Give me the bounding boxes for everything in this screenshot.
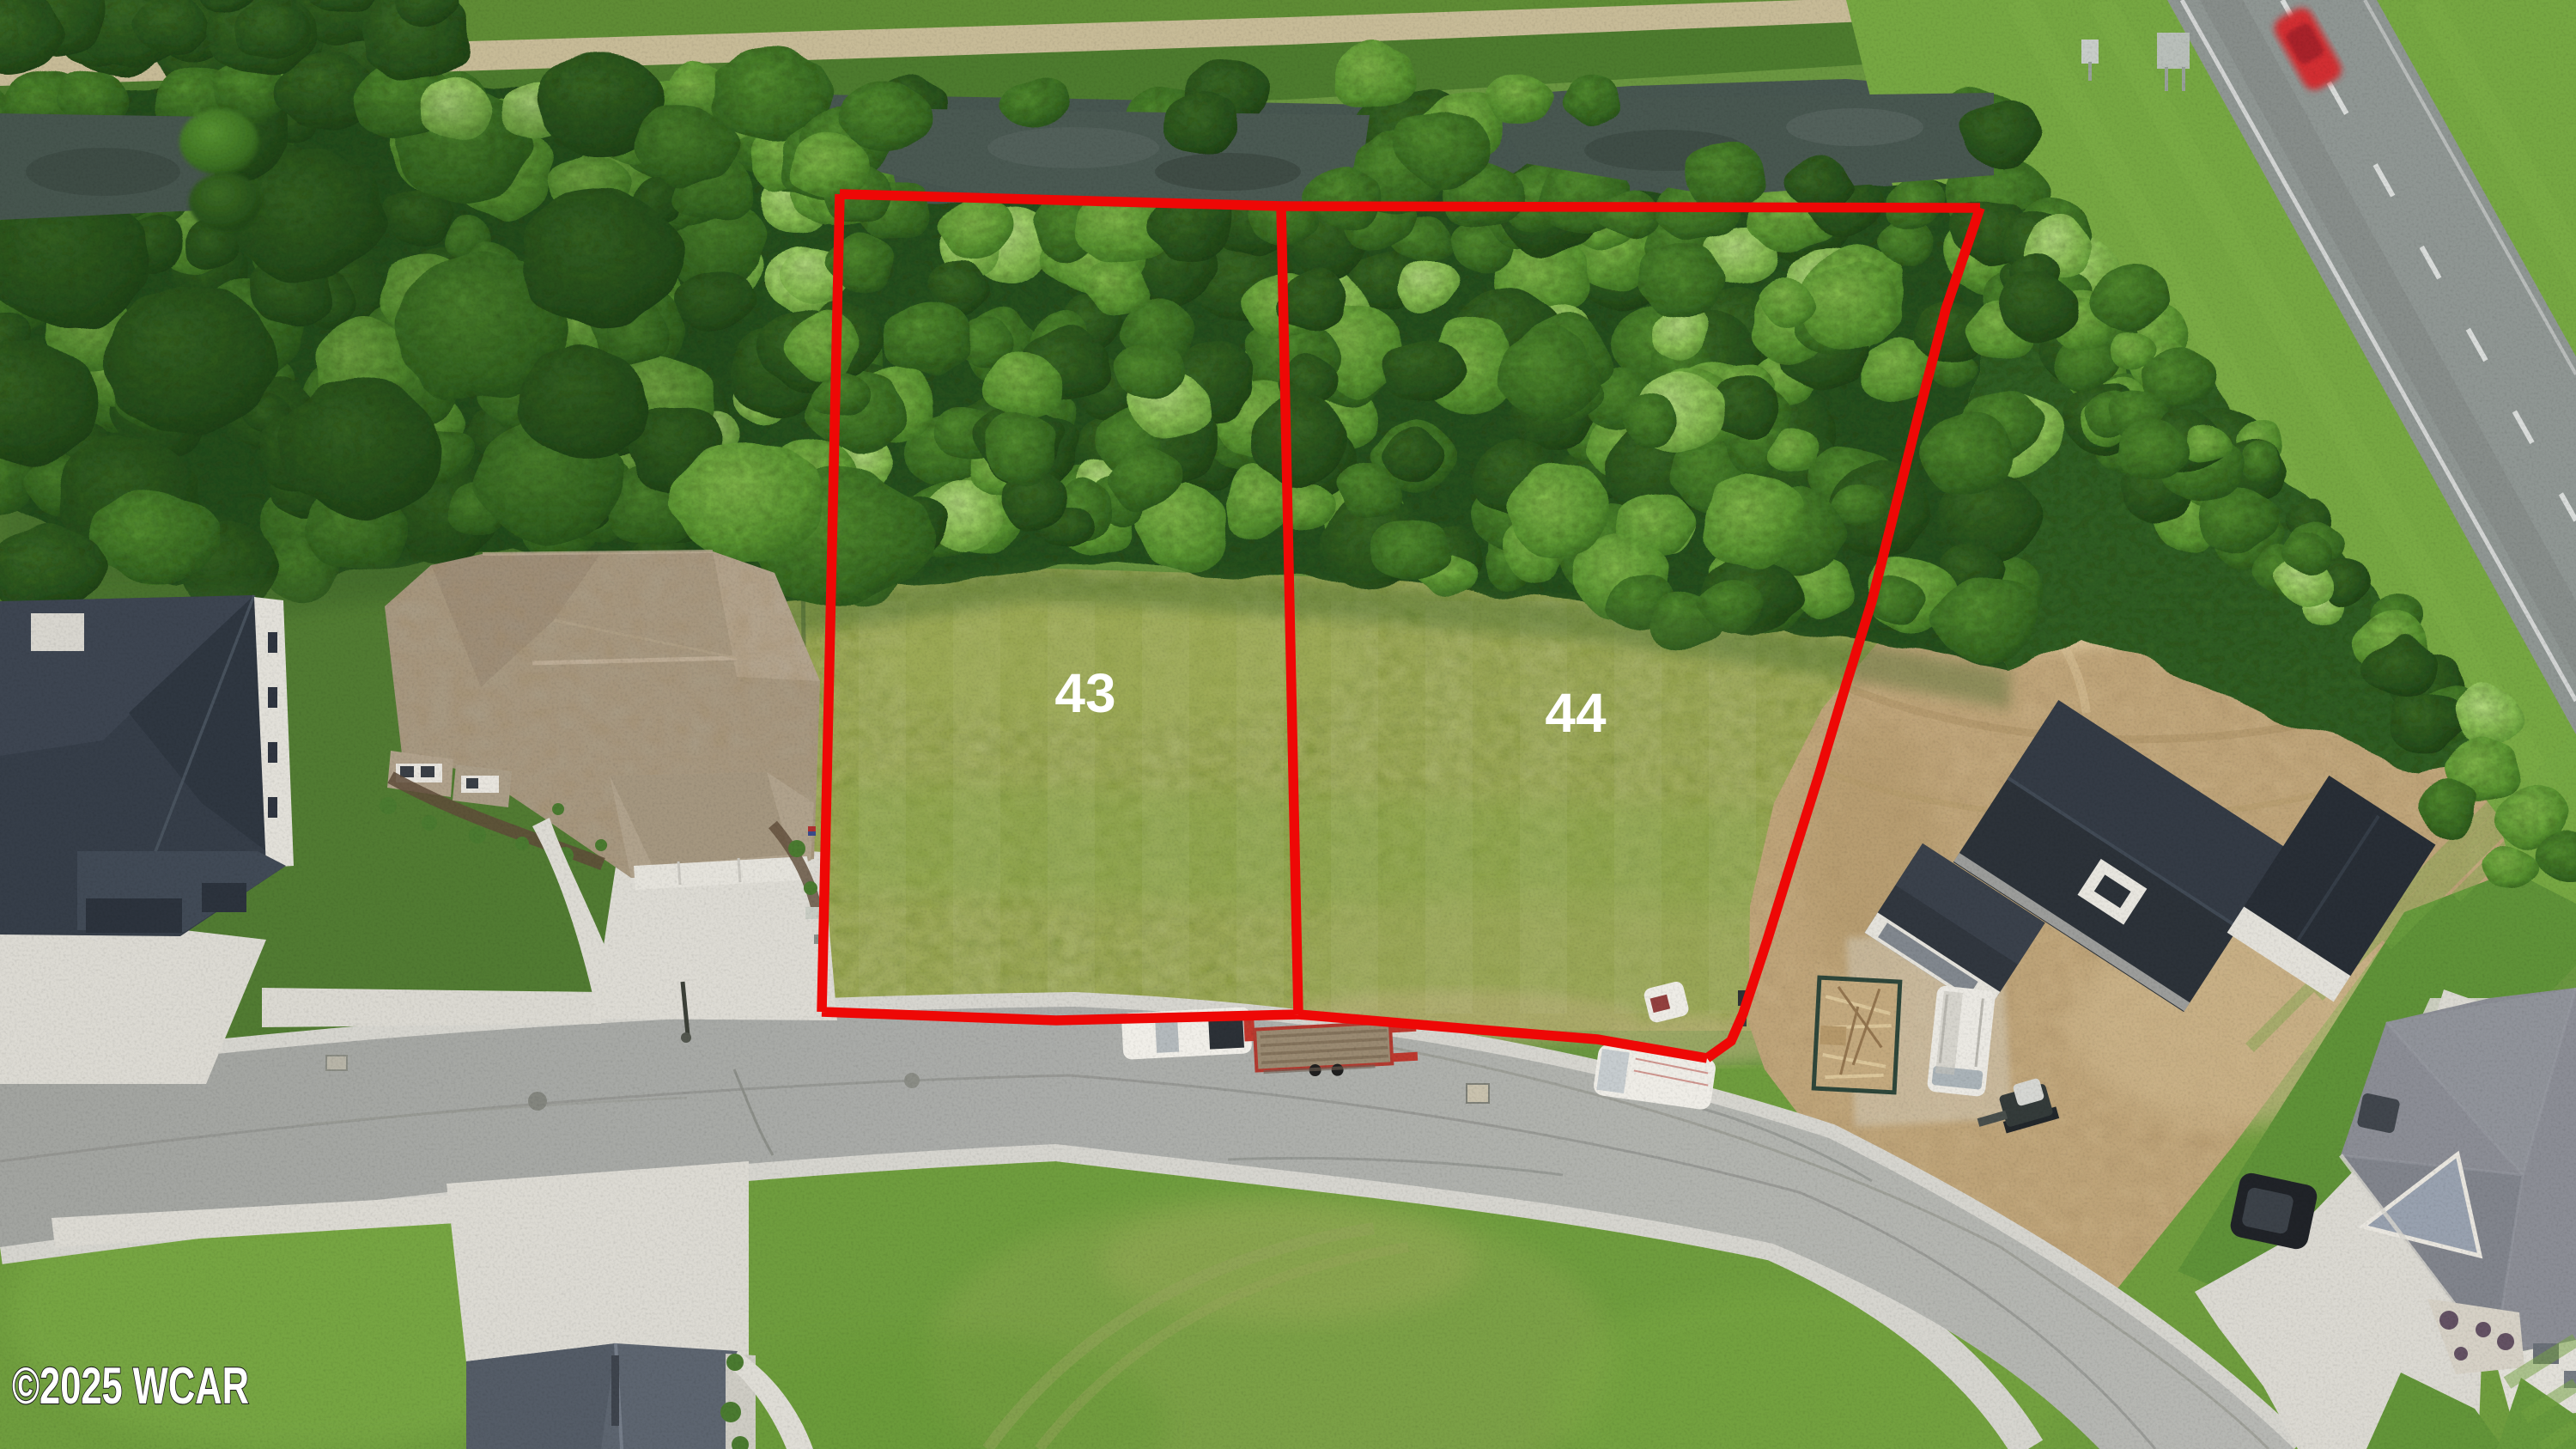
svg-text:©2025 WCAR: ©2025 WCAR <box>12 1357 249 1415</box>
svg-text:43: 43 <box>1054 662 1115 724</box>
svg-text:44: 44 <box>1545 682 1607 744</box>
